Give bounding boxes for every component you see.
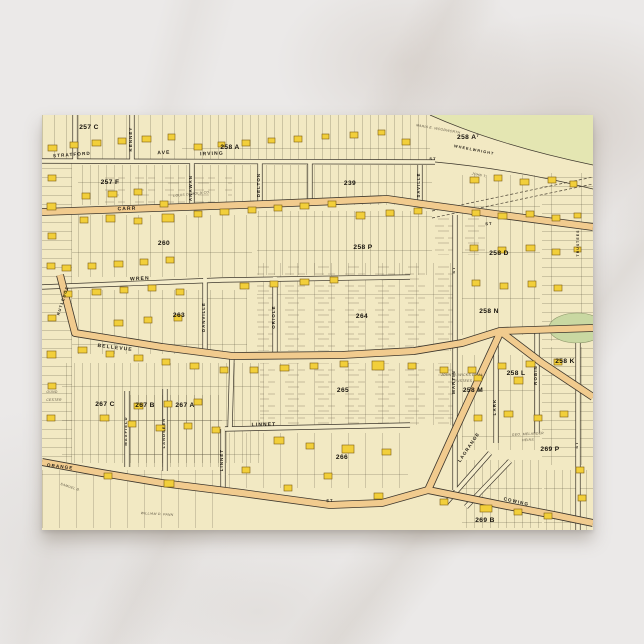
building-footprint [148,285,156,291]
building-footprint [544,513,552,519]
building-footprint [176,289,184,295]
building-footprint [194,211,202,217]
street-label-robin: ROBIN [533,365,538,385]
building-footprint [414,208,422,214]
plate-number: 263 [173,312,185,319]
building-footprint [514,509,522,515]
building-footprint [114,320,123,326]
building-footprint [47,263,55,269]
plate-number: 267 C [95,401,115,408]
street-label-st: ST [574,441,579,448]
building-footprint [474,415,482,421]
building-footprint [48,383,56,389]
building-footprint [134,189,142,195]
building-footprint [128,421,136,427]
plate-number: 258 P [353,244,372,251]
building-footprint [92,140,101,146]
building-footprint [160,201,168,207]
street-label-martin: MARTIN [451,370,456,394]
building-footprint [472,210,480,216]
building-footprint [212,427,220,433]
building-footprint [574,213,581,218]
building-footprint [48,145,57,151]
building-footprint [274,437,284,444]
plate-number: 258 M [463,387,483,394]
building-footprint [306,443,314,449]
building-footprint [560,411,568,417]
plate-number: 257 C [79,124,99,131]
street-label-kenney: KENNEY [128,127,133,152]
building-footprint [140,259,148,265]
street-label-ave: AVE [157,150,170,156]
building-footprint [47,203,56,210]
building-footprint [70,142,78,148]
street-label-linnet: LINNET [252,422,277,428]
street-label-st: ST [429,156,436,161]
building-footprint [472,280,480,286]
building-footprint [168,134,175,140]
vintage-atlas-map: MARIA E. WOODWORTHJOHN T.LOUIS DEMOLD CO… [42,115,593,530]
building-footprint [350,132,358,138]
plate-number: 260 [158,240,170,247]
plate-number: 267 B [135,402,155,409]
building-footprint [498,213,507,219]
building-footprint [220,209,229,215]
plate-number: 265 [337,387,349,394]
street-label-lark: LARK [492,399,497,416]
plate-number: 258 N [479,308,499,315]
building-footprint [554,285,562,291]
building-footprint [534,415,542,421]
street-label-st: ST [485,221,493,226]
building-footprint [120,287,128,293]
building-footprint [142,136,151,142]
building-footprint [47,415,55,421]
building-footprint [374,493,383,499]
owner-label: HEIRS [522,438,534,443]
building-footprint [552,215,560,221]
building-footprint [144,317,152,323]
plate-number: 258 K [555,358,575,365]
building-footprint [324,473,332,479]
building-footprint [578,495,586,501]
building-footprint [548,177,556,183]
street-label-anawan: ANAWAN [188,175,193,201]
building-footprint [240,283,249,289]
street-label-trustees: TRUSTEES [576,230,580,257]
building-footprint [268,138,275,143]
building-footprint [284,485,292,491]
building-footprint [114,261,123,267]
plate-number: 269 B [475,517,495,524]
building-footprint [78,347,87,353]
building-footprint [552,249,560,255]
building-footprint [190,363,199,369]
building-footprint [162,214,174,222]
street-label-landseer: LANDSEER [161,418,166,449]
building-footprint [88,263,96,269]
plate-number: 269 P [540,446,559,453]
street-label-irving: IRVING [200,151,224,158]
building-footprint [526,245,535,251]
building-footprint [526,211,534,217]
building-footprint [528,281,536,287]
building-footprint [184,423,192,429]
plate-number: 258 A [220,144,239,151]
building-footprint [80,217,88,223]
building-footprint [382,449,391,455]
building-footprint [470,177,479,183]
building-footprint [408,363,416,369]
street-label-wren: WREN [130,275,150,282]
building-footprint [378,130,385,135]
building-footprint [118,138,126,144]
street-label-delton: DELTON [256,173,261,197]
building-footprint [106,351,114,357]
building-footprint [250,367,258,373]
building-footprint [340,361,348,367]
building-footprint [294,136,302,142]
owner-label: JOHN M. WICKS ET AL [440,373,483,377]
building-footprint [470,245,478,251]
building-footprint [498,363,506,369]
building-footprint [576,467,584,473]
plate-number: 267 A [175,402,194,409]
building-footprint [500,283,508,289]
building-footprint [134,355,143,361]
plate-number: 258 D [489,250,509,257]
plate-number: 264 [356,313,368,320]
street-label-oriole: ORIOLE [271,305,276,328]
building-footprint [106,215,115,222]
plate-number: 239 [344,180,356,187]
building-footprint [242,467,250,473]
building-footprint [342,445,354,453]
building-footprint [134,218,142,224]
plate-number: 257 F [101,179,120,186]
building-footprint [100,415,109,421]
building-footprint [164,401,172,407]
building-footprint [330,277,338,283]
building-footprint [194,144,202,150]
building-footprint [372,361,384,370]
owner-label: OUND [46,390,57,394]
building-footprint [300,203,309,209]
building-footprint [48,315,56,321]
building-footprint [270,281,278,287]
owner-label: CESTER [46,398,62,402]
marble-background: MARIA E. WOODWORTHJOHN T.LOUIS DEMOLD CO… [0,0,644,644]
building-footprint [92,289,101,295]
building-footprint [47,351,56,358]
building-footprint [194,399,202,405]
building-footprint [322,134,329,139]
building-footprint [242,140,250,146]
building-footprint [280,365,289,371]
building-footprint [162,359,170,365]
building-footprint [570,181,577,187]
building-footprint [300,279,309,285]
building-footprint [274,205,282,211]
building-footprint [386,210,394,216]
building-footprint [108,191,117,197]
building-footprint [480,505,492,512]
building-footprint [328,201,336,207]
building-footprint [164,480,174,487]
building-footprint [514,377,523,384]
plate-number: 258 L [507,370,526,377]
street-label-carr: CARR [117,206,136,213]
street-label-linnet: LINNET [219,449,224,471]
building-footprint [48,233,56,239]
street-label-danville: DANVILLE [201,302,206,332]
plate-number: 258 A7 [457,133,479,141]
building-footprint [104,473,112,479]
building-footprint [356,212,365,219]
building-footprint [494,175,502,181]
building-footprint [504,411,513,417]
building-footprint [248,207,256,213]
street-label-saville: SAVILLE [416,172,421,197]
street-label-st: ST [451,266,456,273]
building-footprint [520,179,529,185]
building-footprint [402,139,410,145]
building-footprint [220,367,228,373]
street-label-st: ST [326,498,333,503]
plate-number: 266 [336,454,348,461]
building-footprint [82,193,90,199]
building-footprint [166,257,174,263]
building-footprint [440,499,448,505]
map-postcard[interactable]: MARIA E. WOODWORTHJOHN T.LOUIS DEMOLD CO… [42,115,593,530]
building-footprint [310,363,318,369]
street-label-maxfield: MAXFIELD [123,416,128,445]
building-footprint [62,265,71,271]
building-footprint [48,175,56,181]
